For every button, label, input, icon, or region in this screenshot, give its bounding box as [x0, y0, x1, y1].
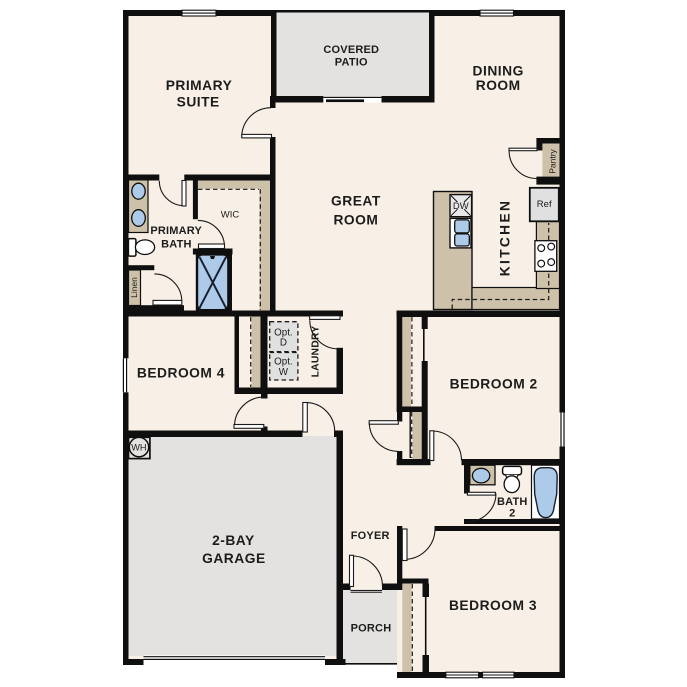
svg-text:GREAT: GREAT [331, 194, 381, 209]
svg-text:LAUNDRY: LAUNDRY [311, 326, 322, 378]
svg-text:Pantry: Pantry [548, 148, 558, 173]
svg-text:D: D [280, 337, 287, 348]
svg-text:PRIMARY: PRIMARY [166, 78, 233, 93]
svg-text:BATH: BATH [497, 496, 528, 508]
svg-text:DW: DW [453, 201, 469, 212]
svg-text:BEDROOM 4: BEDROOM 4 [137, 366, 225, 381]
svg-text:DINING: DINING [473, 63, 524, 78]
svg-text:BEDROOM 2: BEDROOM 2 [450, 377, 538, 392]
svg-text:PORCH: PORCH [351, 623, 392, 635]
svg-text:PRIMARY: PRIMARY [150, 225, 202, 237]
svg-text:PATIO: PATIO [335, 56, 368, 68]
svg-text:BATH: BATH [161, 239, 192, 251]
svg-text:ROOM: ROOM [476, 78, 521, 93]
svg-text:Linen: Linen [129, 277, 139, 298]
svg-text:FOYER: FOYER [351, 530, 390, 542]
svg-text:GARAGE: GARAGE [202, 551, 266, 566]
svg-text:WIC: WIC [221, 209, 240, 220]
svg-text:Ref: Ref [537, 199, 552, 210]
svg-text:COVERED: COVERED [323, 44, 379, 56]
svg-text:SUITE: SUITE [177, 94, 220, 109]
svg-text:ROOM: ROOM [333, 213, 378, 228]
svg-text:W: W [279, 367, 289, 378]
svg-text:2-BAY: 2-BAY [212, 533, 255, 548]
svg-text:WH: WH [131, 443, 146, 453]
svg-text:KITCHEN: KITCHEN [498, 199, 513, 276]
svg-text:2: 2 [509, 507, 515, 519]
svg-text:BEDROOM 3: BEDROOM 3 [449, 598, 537, 613]
